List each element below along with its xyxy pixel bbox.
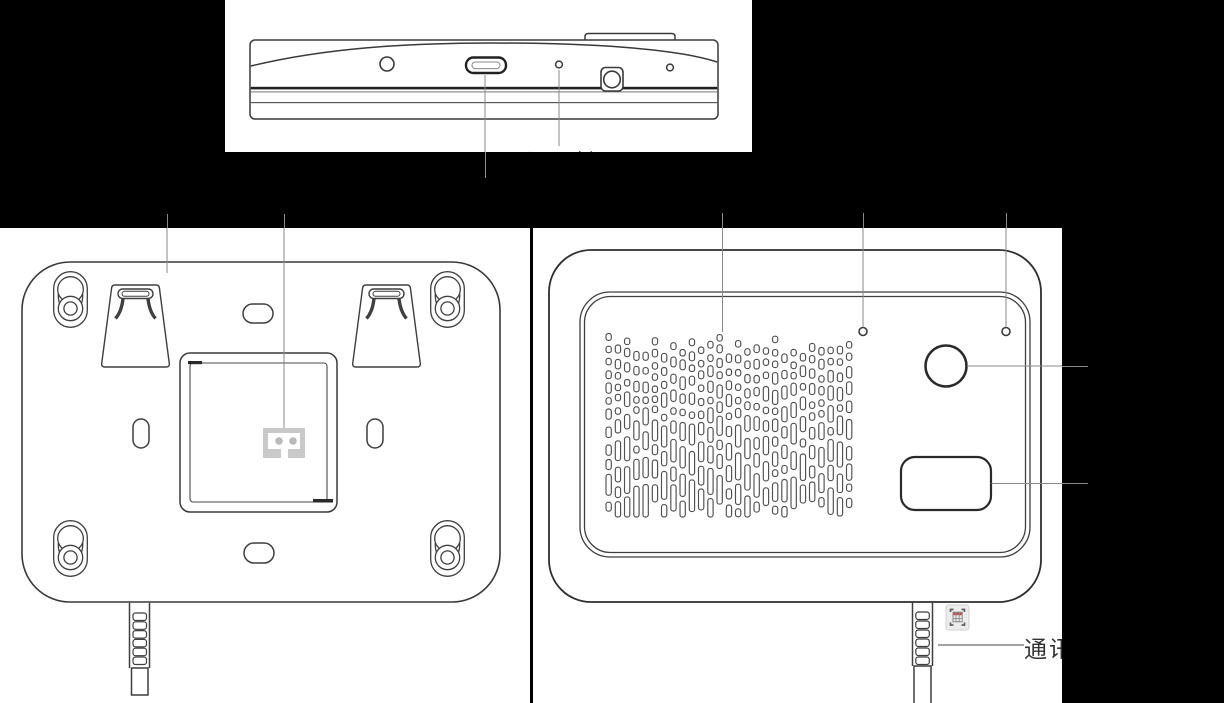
base-line <box>251 102 717 103</box>
leader-stub-usb <box>485 152 486 178</box>
pinhole-left <box>859 328 867 336</box>
settings-key-pinhole <box>556 61 563 68</box>
leader-stub-front-2 <box>863 213 864 228</box>
back-view-drawing <box>0 228 530 703</box>
parting-line-thick <box>251 87 717 90</box>
keyhole-mount-br <box>431 521 465 577</box>
mounting-hook-right <box>353 285 421 367</box>
communication-label: 通讯 <box>1024 630 1062 664</box>
cable-plug-front <box>914 666 931 703</box>
leader-stub-back-2 <box>284 214 285 228</box>
screenshot-root: { "colors": { "background": "#000000", "… <box>0 0 1224 703</box>
leader-stub-sensor <box>1062 366 1088 367</box>
keyhole-mount-tl <box>54 272 88 328</box>
sensor-circle <box>926 346 967 387</box>
back-view-panel <box>0 228 530 703</box>
keyhole-mount-tr <box>431 272 465 328</box>
leader-stub-front-1 <box>722 213 723 228</box>
settings-key-label: 设置键 <box>526 146 601 152</box>
oval-slot-top <box>243 304 273 323</box>
leader-stub-front-3 <box>1006 213 1007 228</box>
power-cable-back <box>130 603 150 695</box>
pinhole-right <box>1002 328 1010 336</box>
leader-stub-button <box>1062 483 1088 484</box>
front-view-drawing <box>533 228 1062 703</box>
mic-pinhole <box>667 64 674 71</box>
parting-line-thin <box>251 91 717 92</box>
scan-region-icon[interactable] <box>946 605 969 630</box>
device-body-side <box>250 40 718 119</box>
round-button-hole <box>380 57 394 71</box>
cable-plug-back <box>132 668 149 695</box>
front-view-panel: 通讯 <box>533 228 1062 703</box>
top-view-panel: 设置键 <box>225 0 752 152</box>
top-view-drawing <box>225 0 752 152</box>
recess-inner <box>190 363 327 502</box>
lens-circle <box>604 71 621 88</box>
recess-tick-bottomright <box>313 499 333 503</box>
oval-slot-right <box>367 419 383 448</box>
communication-cable <box>913 603 933 703</box>
leader-stub-back-1 <box>167 214 168 228</box>
recess-tick-topleft <box>188 361 202 364</box>
keyhole-mount-bl <box>54 521 88 577</box>
wiring-connector <box>263 428 305 458</box>
oval-slot-bottom <box>244 543 274 563</box>
mounting-hook-left <box>102 285 170 367</box>
oval-slot-left <box>133 419 149 448</box>
call-button-area <box>901 457 991 510</box>
